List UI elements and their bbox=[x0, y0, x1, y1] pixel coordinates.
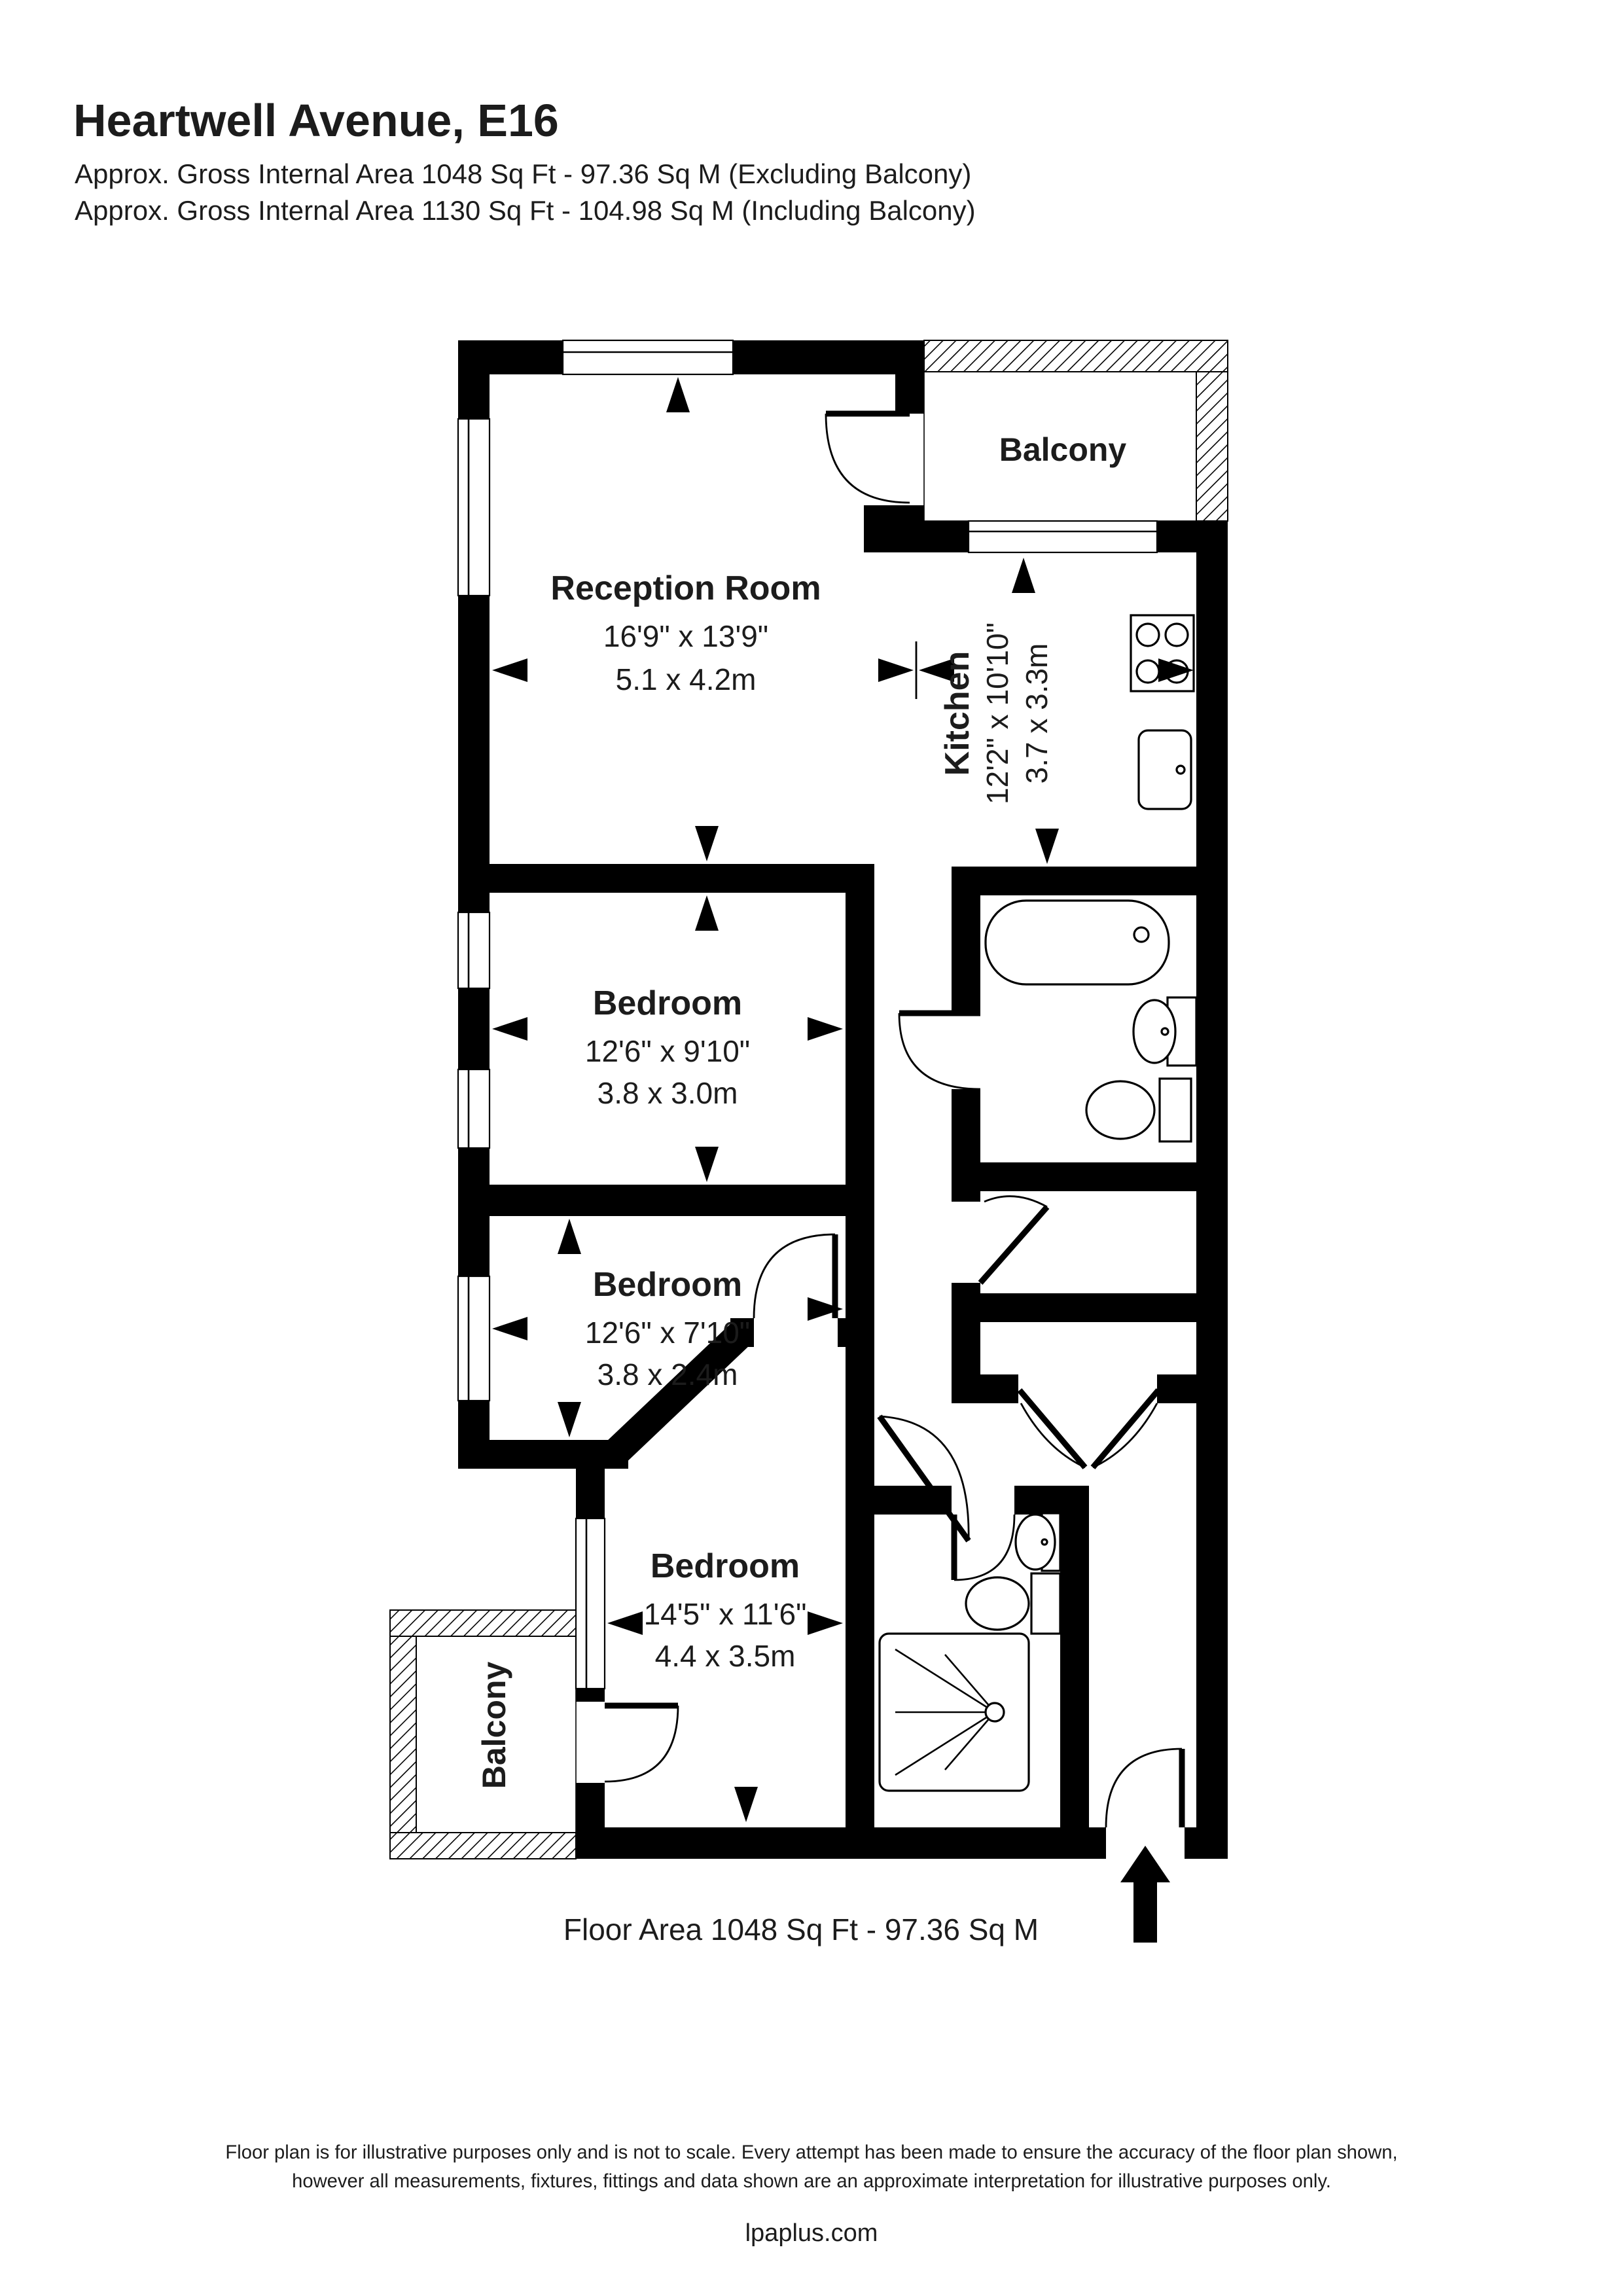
kitchen-imperial: 12'2" x 10'10" bbox=[980, 622, 1014, 804]
window-bedroom3-left bbox=[576, 1518, 605, 1689]
bath-icon bbox=[986, 901, 1169, 984]
bedroom1-name: Bedroom bbox=[593, 984, 742, 1022]
disclaimer-line1: Floor plan is for illustrative purposes … bbox=[225, 2142, 1397, 2163]
area-including-balcony: Approx. Gross Internal Area 1130 Sq Ft -… bbox=[75, 195, 976, 226]
balcony-top-label: Balcony bbox=[999, 431, 1127, 468]
reception-metric: 5.1 x 4.2m bbox=[616, 662, 757, 696]
floor-area-caption: Floor Area 1048 Sq Ft - 97.36 Sq M bbox=[563, 1912, 1039, 1946]
kitchen-metric: 3.7 x 3.3m bbox=[1020, 643, 1054, 784]
bathroom-sink-icon bbox=[1133, 997, 1196, 1066]
area-excluding-balcony: Approx. Gross Internal Area 1048 Sq Ft -… bbox=[75, 158, 971, 189]
bedroom2-metric: 3.8 x 2.4m bbox=[597, 1357, 738, 1391]
bedroom1-imperial: 12'6" x 9'10" bbox=[585, 1034, 750, 1068]
bedroom3-metric: 4.4 x 3.5m bbox=[655, 1639, 796, 1673]
ensuite-sink-icon bbox=[1016, 1513, 1060, 1571]
window-bedroom1-left-a bbox=[458, 912, 490, 988]
floorplan-page: Heartwell Avenue, E16 Approx. Gross Inte… bbox=[0, 0, 1623, 2296]
kitchen-name: Kitchen bbox=[938, 651, 976, 776]
bedroom1-metric: 3.8 x 3.0m bbox=[597, 1076, 738, 1110]
disclaimer-line2: however all measurements, fixtures, fitt… bbox=[292, 2171, 1331, 2192]
page-title: Heartwell Avenue, E16 bbox=[73, 95, 559, 146]
reception-name: Reception Room bbox=[550, 569, 821, 607]
bedroom3-imperial: 14'5" x 11'6" bbox=[644, 1597, 807, 1631]
bedroom2-imperial: 12'6" x 7'10" bbox=[585, 1316, 750, 1350]
website-link: lpaplus.com bbox=[745, 2219, 878, 2247]
balcony-bottom-label: Balcony bbox=[476, 1662, 512, 1789]
reception-imperial: 16'9" x 13'9" bbox=[603, 619, 768, 653]
window-balcony-kitchen bbox=[969, 521, 1157, 552]
bedroom2-name: Bedroom bbox=[593, 1266, 742, 1304]
shower-icon bbox=[880, 1634, 1029, 1791]
bedroom3-name: Bedroom bbox=[651, 1547, 800, 1585]
window-top-reception bbox=[563, 340, 733, 374]
toilet-icon bbox=[1086, 1079, 1191, 1141]
window-bedroom2-left bbox=[458, 1276, 490, 1401]
window-bedroom1-left-b bbox=[458, 1069, 490, 1148]
window-reception-left bbox=[458, 419, 490, 596]
ensuite-toilet-icon bbox=[966, 1573, 1060, 1634]
kitchen-sink-icon bbox=[1139, 730, 1191, 809]
